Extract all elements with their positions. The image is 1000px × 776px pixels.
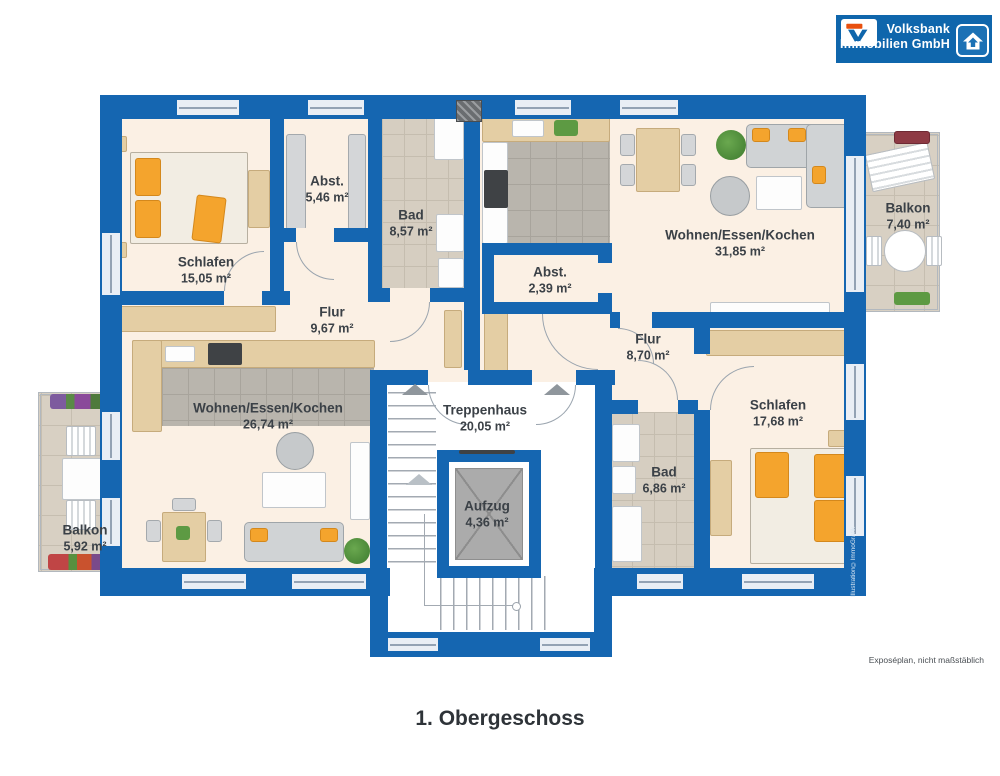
balcony-door xyxy=(846,156,864,292)
tv-board xyxy=(350,442,370,520)
room-label-abst-right: Abst. 2,39 m² xyxy=(528,263,571,296)
room-name: Flur xyxy=(310,303,353,320)
washbasin xyxy=(436,214,464,252)
window xyxy=(308,100,364,115)
toilet xyxy=(612,466,636,494)
coffee-table xyxy=(756,176,802,210)
closet xyxy=(484,312,508,372)
plant xyxy=(344,538,370,564)
wall xyxy=(594,568,866,596)
wall xyxy=(368,95,382,302)
wall xyxy=(270,95,284,245)
window xyxy=(637,574,683,589)
chair xyxy=(620,164,635,186)
kitchen-counter xyxy=(132,340,162,432)
herb-box xyxy=(554,120,578,136)
room-area: 6,86 m² xyxy=(642,481,685,497)
sofa-cushion xyxy=(320,528,338,542)
wall xyxy=(694,410,710,568)
stove xyxy=(208,343,242,365)
wall xyxy=(694,328,710,354)
shower xyxy=(612,506,642,562)
room-area: 26,74 m² xyxy=(193,417,343,433)
room-name: Abst. xyxy=(528,263,571,280)
window xyxy=(292,574,366,589)
room-area: 5,46 m² xyxy=(305,190,348,206)
room-name: Flur xyxy=(626,330,669,347)
room-area: 5,92 m² xyxy=(62,539,107,555)
room-area: 31,85 m² xyxy=(665,244,815,260)
scale-disclaimer: Exposéplan, nicht maßstäblich xyxy=(869,655,984,665)
balcony-door xyxy=(102,412,120,460)
window xyxy=(102,233,120,295)
room-area: 8,57 m² xyxy=(389,224,432,240)
sofa-cushion xyxy=(752,128,770,142)
room-label-schlafen-left: Schlafen 15,05 m² xyxy=(178,253,234,286)
window xyxy=(182,574,246,589)
storage-shelf xyxy=(286,134,306,230)
window xyxy=(742,574,814,589)
wall xyxy=(652,312,866,328)
chair xyxy=(620,134,635,156)
kitchen-sink xyxy=(512,120,544,137)
wall xyxy=(482,243,612,255)
room-area: 4,36 m² xyxy=(464,515,510,531)
wall xyxy=(375,370,428,385)
room-label-bad-left: Bad 8,57 m² xyxy=(389,206,432,239)
room-name: Schlafen xyxy=(178,253,234,270)
sideboard xyxy=(104,306,276,332)
sofa-cushion xyxy=(250,528,268,542)
wall xyxy=(482,302,612,314)
window xyxy=(515,100,571,115)
table-deco xyxy=(176,526,190,540)
washbasin xyxy=(612,424,640,462)
kitchen-right-tiles xyxy=(504,132,610,244)
kitchen-sink xyxy=(165,346,195,362)
room-label-flur-left: Flur 9,67 m² xyxy=(310,303,353,336)
room-name: Bad xyxy=(642,463,685,480)
room-label-treppenhaus: Treppenhaus 20,05 m² xyxy=(443,401,527,434)
illustration-credit: Illustration©ImmoGrafik xyxy=(850,497,857,597)
door-gap xyxy=(390,288,430,302)
room-label-balkon-left: Balkon 5,92 m² xyxy=(62,521,107,554)
wall xyxy=(598,292,612,304)
balcony-chair xyxy=(866,236,882,266)
room-label-schlafen-right: Schlafen 17,68 m² xyxy=(750,396,806,429)
armchair xyxy=(710,176,750,216)
room-name: Treppenhaus xyxy=(443,401,527,418)
stair-arrow xyxy=(406,474,432,485)
page-title: 1. Obergeschoss xyxy=(415,707,584,731)
wall xyxy=(370,370,387,570)
logo-line1: Volksbank xyxy=(840,22,950,37)
balcony-chair xyxy=(926,236,942,266)
room-area: 8,70 m² xyxy=(626,348,669,364)
room-area: 9,67 m² xyxy=(310,321,353,337)
balcony-chair xyxy=(66,426,96,456)
chair xyxy=(681,164,696,186)
closet xyxy=(444,310,462,368)
sofa-cushion xyxy=(788,128,806,142)
vent-shaft xyxy=(456,100,482,122)
room-area: 20,05 m² xyxy=(443,419,527,435)
window xyxy=(540,638,590,651)
flower-box xyxy=(50,394,104,409)
room-name: Abst. xyxy=(305,172,348,189)
bed-blanket xyxy=(814,500,848,542)
wall xyxy=(468,370,532,385)
room-label-balkon-right: Balkon 7,40 m² xyxy=(885,199,930,232)
room-name: Schlafen xyxy=(750,396,806,413)
room-label-abst-left: Abst. 5,46 m² xyxy=(305,172,348,205)
balcony-table xyxy=(62,458,102,500)
storage-shelf xyxy=(348,134,366,230)
bed-blanket xyxy=(191,194,226,243)
coffee-table xyxy=(262,472,326,508)
window xyxy=(177,100,239,115)
shower xyxy=(434,116,464,160)
window xyxy=(620,100,678,115)
room-name: Wohnen/Essen/Kochen xyxy=(665,226,815,243)
room-area: 15,05 m² xyxy=(178,271,234,287)
railing-node xyxy=(512,602,521,611)
sofa-cushion xyxy=(812,166,826,184)
balcony-table xyxy=(884,230,926,272)
wardrobe xyxy=(710,460,732,536)
dining-table xyxy=(636,128,680,192)
wall xyxy=(595,385,612,570)
house-arrow-icon xyxy=(956,24,989,57)
door-gap xyxy=(224,291,262,305)
logo-line2: Immobilien GmbH xyxy=(840,37,950,52)
wall xyxy=(464,95,480,370)
logo-text: Volksbank Immobilien GmbH xyxy=(840,22,950,52)
room-name: Bad xyxy=(389,206,432,223)
window xyxy=(388,638,438,651)
room-label-wek-left: Wohnen/Essen/Kochen 26,74 m² xyxy=(193,399,343,432)
bed-pillow xyxy=(135,158,161,196)
room-area: 17,68 m² xyxy=(750,414,806,430)
door-gap xyxy=(296,228,334,242)
room-area: 7,40 m² xyxy=(885,217,930,233)
bed-pillow xyxy=(814,454,848,498)
room-name: Wohnen/Essen/Kochen xyxy=(193,399,343,416)
direction-marker xyxy=(544,384,570,395)
direction-marker xyxy=(402,384,428,395)
room-area: 2,39 m² xyxy=(528,281,571,297)
wall xyxy=(610,312,620,328)
flower-box xyxy=(894,292,930,305)
room-label-wek-right: Wohnen/Essen/Kochen 31,85 m² xyxy=(665,226,815,259)
floor-plan: Schlafen 15,05 m² Abst. 5,46 m² Bad 8,57… xyxy=(0,0,1000,776)
wall xyxy=(598,243,612,263)
room-label-bad-right: Bad 6,86 m² xyxy=(642,463,685,496)
chair xyxy=(681,134,696,156)
wall xyxy=(678,400,698,414)
door-gap xyxy=(598,263,612,293)
room-label-flur-right: Flur 8,70 m² xyxy=(626,330,669,363)
plant xyxy=(716,130,746,160)
kitchen-counter xyxy=(482,116,610,142)
bed-pillow xyxy=(755,452,789,498)
stove xyxy=(484,170,508,208)
chair xyxy=(146,520,161,542)
elevator-door xyxy=(459,450,515,454)
room-name: Balkon xyxy=(885,199,930,216)
toilet xyxy=(438,258,464,288)
chair xyxy=(172,498,196,511)
chair xyxy=(207,520,222,542)
room-label-aufzug: Aufzug 4,36 m² xyxy=(464,497,510,530)
bed-pillow xyxy=(135,200,161,238)
sideboard xyxy=(706,330,848,356)
flower-box xyxy=(48,554,106,570)
window xyxy=(846,364,864,420)
wall xyxy=(576,370,615,385)
flower-box xyxy=(894,131,930,144)
volksbank-logo: Volksbank Immobilien GmbH xyxy=(836,15,992,63)
room-name: Balkon xyxy=(62,521,107,538)
armchair xyxy=(276,432,314,470)
wardrobe xyxy=(248,170,270,228)
room-name: Aufzug xyxy=(464,497,510,514)
